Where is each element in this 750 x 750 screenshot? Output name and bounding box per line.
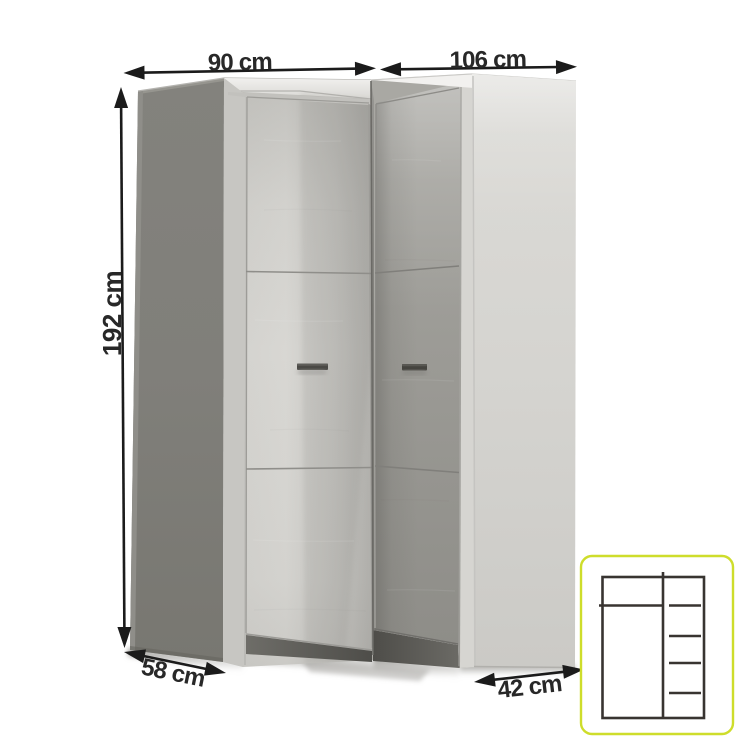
svg-text:106 cm: 106 cm xyxy=(449,46,526,75)
svg-text:90 cm: 90 cm xyxy=(208,48,273,76)
svg-text:192 cm: 192 cm xyxy=(97,271,127,356)
